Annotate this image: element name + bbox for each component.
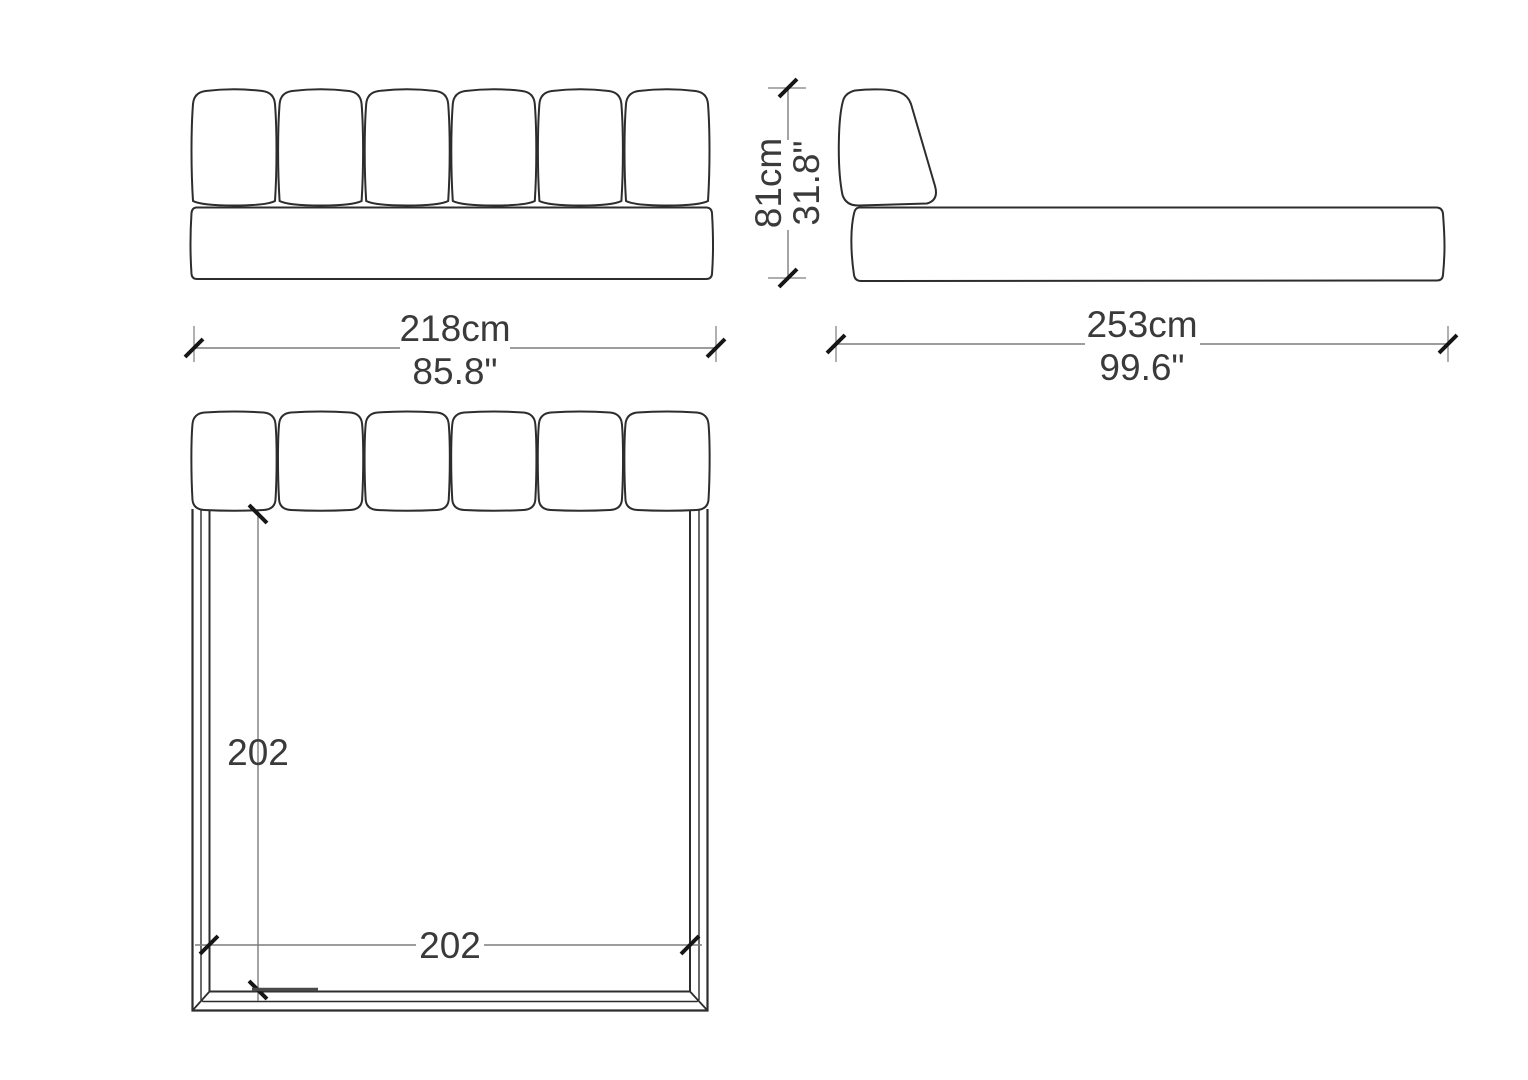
front-width-dimension: 218cm 85.8" — [185, 308, 725, 392]
side-length-dimension: 253cm 99.6" — [827, 304, 1457, 388]
front-width-cm-label: 218cm — [399, 308, 510, 349]
side-height-dimension: 81cm 31.8" — [748, 79, 827, 287]
headboard-cushion-top — [278, 412, 363, 511]
top-view: 202 202 — [191, 412, 709, 1011]
side-base — [851, 208, 1444, 282]
headboard-cushion-front — [538, 89, 623, 205]
headboard-cushion-top — [191, 412, 276, 511]
headboard-cushion-top — [624, 412, 709, 511]
front-width-in-label: 85.8" — [412, 351, 497, 392]
side-view: 81cm 31.8" 253cm 99.6" — [748, 79, 1457, 388]
side-headboard — [839, 89, 936, 205]
top-width-dimension: 202 — [195, 925, 702, 966]
headboard-cushion-front — [365, 89, 450, 205]
headboard-cushion-top — [365, 412, 450, 511]
headboard-cushion-front — [451, 89, 536, 205]
side-height-in-label: 31.8" — [786, 140, 827, 225]
top-depth-dimension: 202 — [227, 505, 318, 1001]
bed-technical-drawing: 218cm 85.8" 81cm 31.8" 253cm 99.6" — [0, 0, 1528, 1080]
headboard-cushion-top — [538, 412, 623, 511]
drawing-svg: 218cm 85.8" 81cm 31.8" 253cm 99.6" — [0, 0, 1528, 1080]
top-width-label: 202 — [419, 925, 481, 966]
side-length-cm-label: 253cm — [1086, 304, 1197, 345]
side-height-cm-label: 81cm — [748, 138, 789, 228]
headboard-cushion-top — [451, 412, 536, 511]
front-headboard-cushions — [192, 89, 710, 205]
front-base — [190, 208, 713, 280]
top-depth-label: 202 — [227, 732, 289, 773]
top-headboard-cushions — [191, 412, 709, 511]
headboard-cushion-front — [625, 89, 710, 205]
headboard-cushion-front — [192, 89, 277, 205]
side-length-in-label: 99.6" — [1099, 347, 1184, 388]
front-view: 218cm 85.8" — [185, 89, 725, 392]
headboard-cushion-front — [278, 89, 363, 205]
